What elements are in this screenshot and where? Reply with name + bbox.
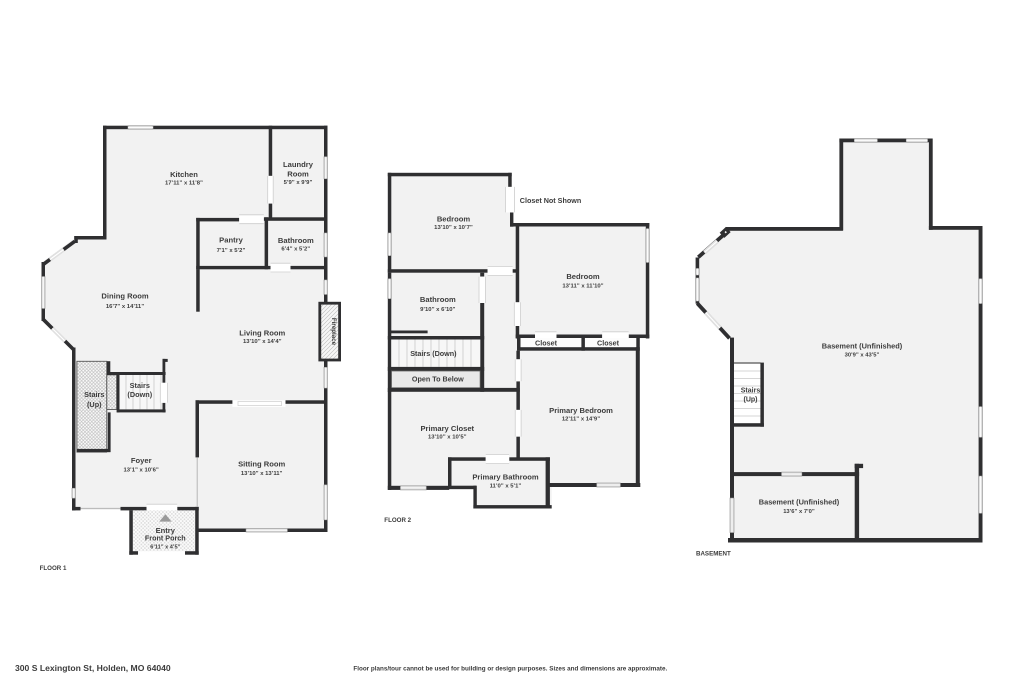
svg-text:9’10” x 6’10”: 9’10” x 6’10” <box>420 307 455 313</box>
svg-text:13’10” x 14’4”: 13’10” x 14’4” <box>243 339 282 345</box>
svg-text:Closet: Closet <box>535 339 558 348</box>
svg-text:Bedroom: Bedroom <box>437 215 471 224</box>
svg-text:5’9” x 9’9”: 5’9” x 9’9” <box>284 180 313 186</box>
svg-text:Closet Not Shown: Closet Not Shown <box>520 196 582 205</box>
svg-text:Kitchen: Kitchen <box>170 170 198 179</box>
svg-text:FLOOR 2: FLOOR 2 <box>384 517 411 524</box>
svg-text:(Up): (Up) <box>87 400 102 409</box>
svg-text:BASEMENT: BASEMENT <box>696 551 731 558</box>
svg-text:Basement (Unfinished): Basement (Unfinished) <box>759 497 840 506</box>
svg-text:13’1” x 10’6”: 13’1” x 10’6” <box>124 467 159 473</box>
svg-text:Pantry: Pantry <box>219 236 243 245</box>
svg-text:Basement (Unfinished): Basement (Unfinished) <box>822 341 903 350</box>
svg-text:13’10” x 13’11”: 13’10” x 13’11” <box>241 471 283 477</box>
svg-text:6’4” x 5’2”: 6’4” x 5’2” <box>281 247 310 253</box>
svg-text:Closet: Closet <box>597 339 620 348</box>
svg-text:12’11” x 14’9”: 12’11” x 14’9” <box>562 417 600 423</box>
svg-text:30’9” x 43’5”: 30’9” x 43’5” <box>845 352 880 358</box>
svg-text:Dining Room: Dining Room <box>101 291 148 300</box>
svg-text:300 S Lexington St, Holden, MO: 300 S Lexington St, Holden, MO 64040 <box>15 663 171 673</box>
svg-text:Primary Bedroom: Primary Bedroom <box>549 406 613 415</box>
svg-text:Stairs: Stairs <box>741 388 761 395</box>
svg-text:Foyer: Foyer <box>131 456 152 465</box>
svg-text:13’10” x 10’7”: 13’10” x 10’7” <box>434 225 473 231</box>
svg-text:Room: Room <box>287 169 309 178</box>
svg-text:13’10” x 10’5”: 13’10” x 10’5” <box>428 434 467 440</box>
svg-text:Stairs: Stairs <box>84 390 104 399</box>
svg-text:Bathroom: Bathroom <box>420 295 456 304</box>
svg-text:Open To Below: Open To Below <box>412 375 464 384</box>
svg-text:Fireplace: Fireplace <box>330 318 337 346</box>
svg-text:Floor plans/tour cannot be use: Floor plans/tour cannot be used for buil… <box>353 666 667 673</box>
svg-text:Front Porch: Front Porch <box>145 534 186 543</box>
svg-text:Bedroom: Bedroom <box>566 272 600 281</box>
svg-text:(Up): (Up) <box>744 397 758 404</box>
svg-text:(Down): (Down) <box>127 390 152 399</box>
svg-text:Stairs: Stairs <box>130 381 150 390</box>
svg-text:13’6” x 7’0”: 13’6” x 7’0” <box>783 509 815 515</box>
svg-text:Sitting Room: Sitting Room <box>238 460 285 469</box>
svg-text:6’11” x 4’5”: 6’11” x 4’5” <box>150 544 180 550</box>
svg-text:Laundry: Laundry <box>283 160 314 169</box>
svg-text:7’1” x 5’2”: 7’1” x 5’2” <box>217 248 246 254</box>
svg-text:Living Room: Living Room <box>239 328 285 337</box>
svg-text:13’11” x 11’10”: 13’11” x 11’10” <box>562 284 603 290</box>
svg-text:17’11” x 11’8”: 17’11” x 11’8” <box>165 180 203 186</box>
svg-text:FLOOR 1: FLOOR 1 <box>40 565 67 572</box>
svg-text:Primary Bathroom: Primary Bathroom <box>472 473 539 482</box>
svg-text:Bathroom: Bathroom <box>278 236 314 245</box>
svg-text:Primary Closet: Primary Closet <box>420 424 474 433</box>
svg-text:Stairs (Down): Stairs (Down) <box>410 349 457 358</box>
svg-text:11’0” x 5’1”: 11’0” x 5’1” <box>490 484 522 490</box>
svg-text:16’7” x 14’11”: 16’7” x 14’11” <box>106 304 144 310</box>
